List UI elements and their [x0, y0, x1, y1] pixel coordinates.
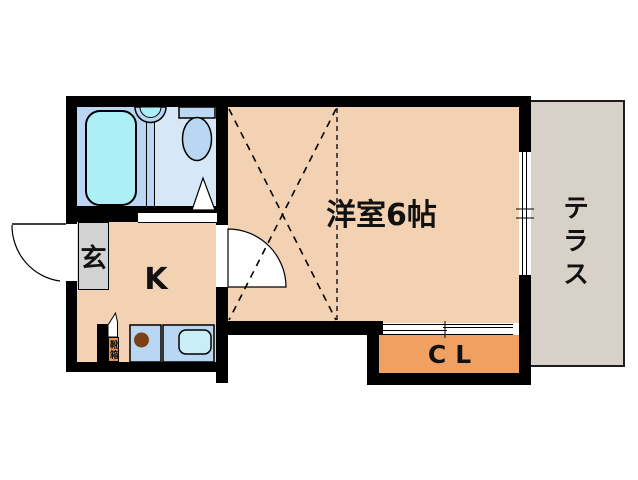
wall-left-upper	[66, 96, 77, 224]
closet-window	[383, 324, 513, 335]
shoe-box	[108, 337, 119, 362]
entrance-floor	[78, 222, 109, 290]
window-pane-line	[522, 152, 523, 275]
wall-center-lower	[216, 287, 228, 383]
bath-door-opening	[138, 213, 217, 223]
terrace-area	[529, 100, 625, 367]
wall-right-upper	[519, 96, 531, 152]
wall-top	[66, 96, 531, 107]
window-pane-line	[526, 152, 527, 275]
wall-closet-bottom	[367, 373, 531, 385]
wall-room-bottom	[228, 321, 383, 335]
terrace-window	[519, 152, 531, 275]
wall-center-upper	[216, 96, 228, 225]
toilet-room-floor	[155, 107, 216, 206]
closet-area	[379, 335, 520, 373]
wall-kitchen-pillar	[97, 324, 108, 372]
western-room-floor	[228, 107, 519, 323]
floorplan: テラス	[0, 0, 638, 480]
wall-bottom-kitchen	[66, 362, 228, 372]
wall-left-lower	[66, 281, 77, 372]
bath-room-floor	[77, 107, 155, 206]
wall-right-lower	[519, 275, 531, 385]
entrance-door-arc	[12, 225, 60, 281]
